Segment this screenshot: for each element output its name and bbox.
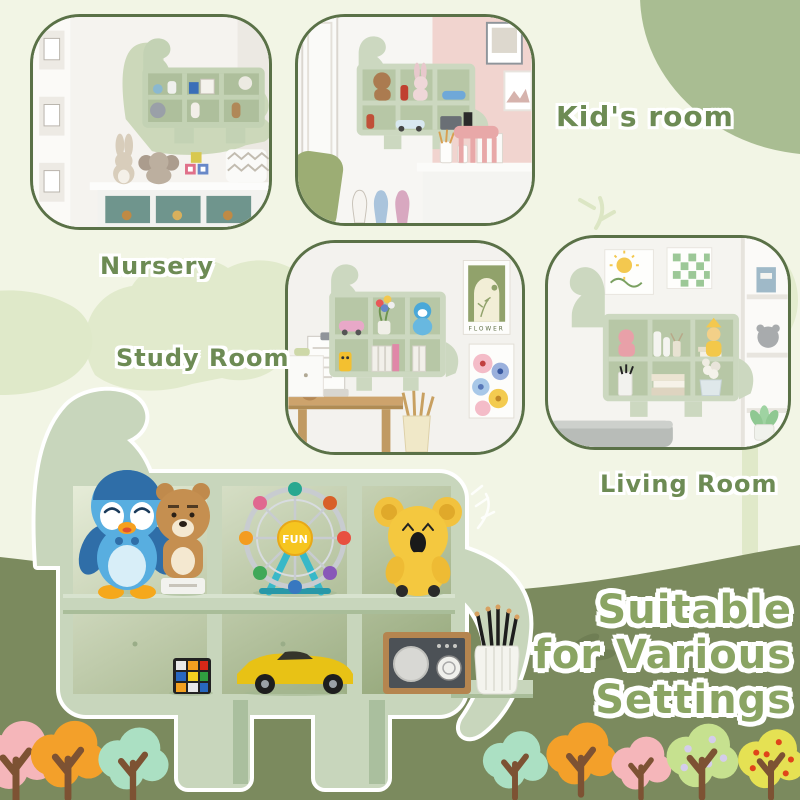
headline-line-2: for Various	[534, 633, 793, 678]
kids-room-scene	[298, 17, 532, 223]
ferris-wheel-fun-text: FUN	[282, 533, 308, 546]
wall-shelving-unit	[741, 238, 788, 447]
bowling-pins	[353, 190, 410, 223]
flower-poster: FLOWER	[463, 260, 510, 334]
nursery-photo	[30, 14, 272, 230]
headline-line-1: Suitable	[534, 588, 793, 633]
living-room-label: Living Room	[600, 470, 777, 498]
living-room-scene	[548, 238, 788, 447]
wall-shelving	[33, 17, 70, 227]
headline: Suitable for Various Settings	[534, 588, 793, 723]
bunny-plush	[113, 134, 134, 185]
kids-room-label: Kid's room	[556, 100, 734, 133]
door-frame	[302, 17, 337, 161]
nursery-scene	[33, 17, 269, 227]
living-room-photo	[545, 235, 791, 450]
poster-title: FLOWER	[469, 326, 505, 332]
zigzag-pillow	[226, 149, 269, 182]
sofa-cushion	[548, 421, 672, 429]
product-banner: FLOWER	[0, 0, 800, 800]
dotted-yellow-tree	[732, 726, 800, 800]
kids-room-photo	[295, 14, 535, 226]
study-room-label: Study Room	[116, 344, 290, 372]
ferris-wheel-toy: FUN	[239, 482, 351, 594]
back-leg-shade	[369, 700, 385, 784]
back-leg-shade	[233, 700, 248, 784]
rubiks-cube	[173, 658, 211, 694]
retro-radio	[383, 632, 471, 694]
toy-cabinet	[90, 182, 269, 227]
mint-tree	[92, 726, 174, 800]
nursery-label: Nursery	[100, 252, 214, 280]
